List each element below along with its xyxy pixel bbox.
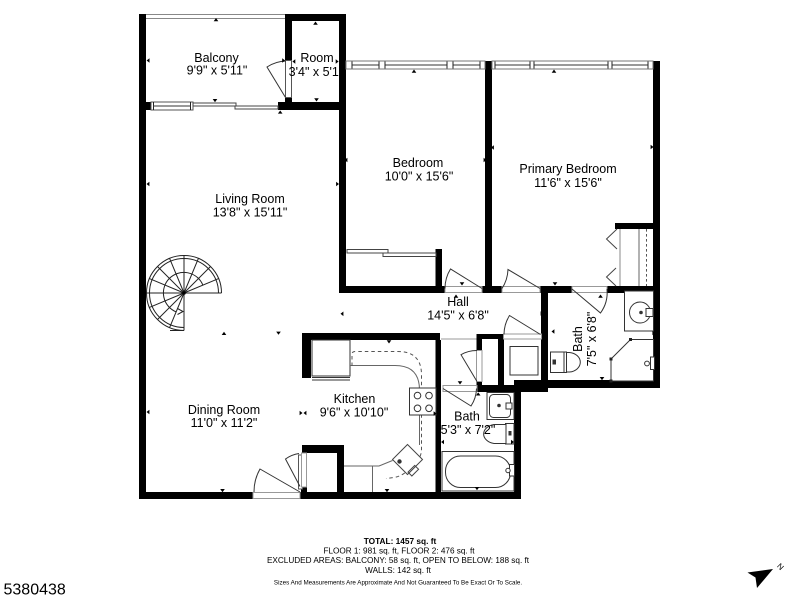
svg-text:5380438: 5380438 bbox=[4, 582, 66, 599]
svg-text:Kitchen: Kitchen bbox=[334, 392, 376, 406]
svg-text:14'5" x 6'8": 14'5" x 6'8" bbox=[427, 309, 489, 323]
svg-text:9'6" x 10'10": 9'6" x 10'10" bbox=[320, 406, 389, 420]
svg-text:Bath: Bath bbox=[571, 326, 585, 352]
svg-text:Hall: Hall bbox=[447, 295, 469, 309]
svg-text:Dining Room: Dining Room bbox=[188, 403, 260, 417]
svg-text:WALLS: 142 sq. ft: WALLS: 142 sq. ft bbox=[365, 566, 431, 575]
svg-text:TOTAL: 1457 sq. ft: TOTAL: 1457 sq. ft bbox=[364, 536, 437, 546]
svg-text:9'9" x 5'11": 9'9" x 5'11" bbox=[187, 64, 248, 78]
svg-text:FLOOR 1: 981 sq. ft, FLOOR 2:: FLOOR 1: 981 sq. ft, FLOOR 2: 476 sq. ft bbox=[323, 547, 475, 556]
svg-text:Room: Room bbox=[300, 51, 333, 65]
svg-text:3'4" x 5'1": 3'4" x 5'1" bbox=[289, 65, 344, 79]
svg-text:7'5" x 6'8": 7'5" x 6'8" bbox=[585, 312, 599, 367]
svg-text:13'8" x 15'11": 13'8" x 15'11" bbox=[213, 206, 288, 220]
svg-text:Bath: Bath bbox=[454, 410, 480, 424]
svg-text:10'0" x 15'6": 10'0" x 15'6" bbox=[385, 170, 454, 184]
svg-text:EXCLUDED AREAS: BALCONY: 58 sq: EXCLUDED AREAS: BALCONY: 58 sq. ft, OPEN… bbox=[267, 556, 530, 565]
svg-text:Bedroom: Bedroom bbox=[393, 156, 444, 170]
svg-text:Living Room: Living Room bbox=[215, 192, 284, 206]
svg-text:11'0" x 11'2": 11'0" x 11'2" bbox=[191, 416, 258, 430]
svg-text:11'6" x 15'6": 11'6" x 15'6" bbox=[534, 176, 602, 190]
svg-text:Sizes And Measurements Are App: Sizes And Measurements Are Approximate A… bbox=[274, 580, 522, 587]
svg-text:Primary Bedroom: Primary Bedroom bbox=[519, 162, 616, 176]
svg-text:5'3" x 7'2": 5'3" x 7'2" bbox=[441, 423, 496, 437]
